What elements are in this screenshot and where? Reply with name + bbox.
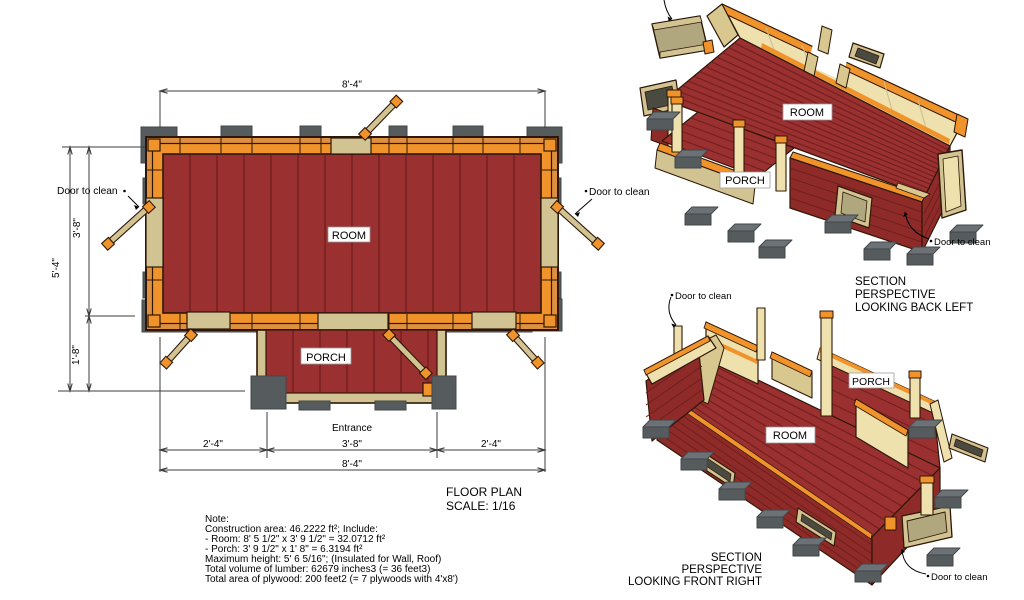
svg-text:Total area of plywood: 200 fee: Total area of plywood: 200 feet2 (= 7 pl… <box>205 574 458 585</box>
svg-text:LOOKING FRONT RIGHT: LOOKING FRONT RIGHT <box>628 576 762 588</box>
svg-text:FLOOR PLAN: FLOOR PLAN <box>446 485 522 499</box>
svg-text:Entrance: Entrance <box>332 423 372 434</box>
svg-text:Door to clean: Door to clean <box>931 572 988 583</box>
svg-text:ROOM: ROOM <box>790 107 824 119</box>
svg-text:SECTION: SECTION <box>711 552 762 564</box>
svg-text:Door to clean: Door to clean <box>589 187 650 198</box>
svg-text:PORCH: PORCH <box>852 376 890 388</box>
svg-text:PORCH: PORCH <box>306 352 346 364</box>
svg-text:ROOM: ROOM <box>773 430 807 442</box>
svg-text:ROOM: ROOM <box>332 230 366 242</box>
svg-text:3'-8": 3'-8" <box>342 439 362 450</box>
svg-text:PERSPECTIVE: PERSPECTIVE <box>681 564 762 576</box>
svg-text:8'-4": 8'-4" <box>342 459 362 470</box>
svg-text:LOOKING BACK LEFT: LOOKING BACK LEFT <box>855 302 973 314</box>
svg-text:SCALE: 1/16: SCALE: 1/16 <box>446 499 516 513</box>
svg-text:Door to clean: Door to clean <box>675 291 732 302</box>
svg-text:5'-4": 5'-4" <box>51 258 62 278</box>
svg-text:PORCH: PORCH <box>725 175 765 187</box>
svg-text:PERSPECTIVE: PERSPECTIVE <box>855 289 936 301</box>
svg-text:Door to clean: Door to clean <box>934 237 991 248</box>
svg-text:2'-4": 2'-4" <box>481 439 501 450</box>
svg-text:2'-4": 2'-4" <box>203 439 223 450</box>
svg-text:1'-8": 1'-8" <box>71 345 82 365</box>
svg-text:Door to clean: Door to clean <box>57 186 118 197</box>
svg-text:3'-8": 3'-8" <box>72 218 83 238</box>
svg-text:SECTION: SECTION <box>855 276 906 288</box>
svg-text:8'-4": 8'-4" <box>342 80 362 91</box>
